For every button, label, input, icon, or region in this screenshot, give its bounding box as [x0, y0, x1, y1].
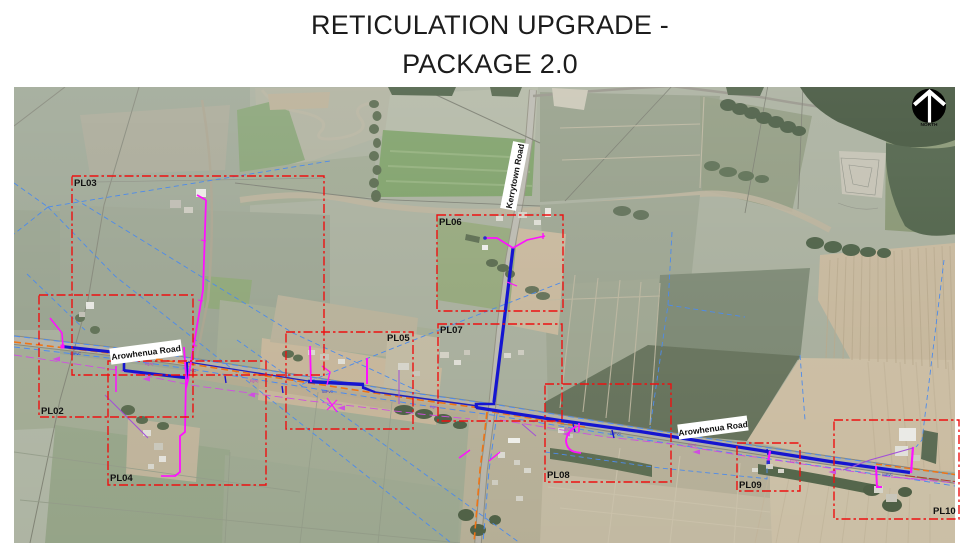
svg-text:PL07: PL07	[440, 325, 463, 336]
svg-text:PL08: PL08	[547, 470, 570, 481]
svg-text:PL02: PL02	[41, 406, 64, 417]
svg-text:E(pv): E(pv)	[145, 362, 153, 366]
svg-text:50PVC: 50PVC	[322, 390, 334, 394]
svg-text:PL09: PL09	[739, 480, 762, 491]
svg-text:PL06: PL06	[439, 217, 462, 228]
svg-text:50PVC: 50PVC	[882, 473, 894, 477]
svg-text:PL03: PL03	[74, 178, 97, 189]
svg-text:E(pv): E(pv)	[250, 379, 258, 383]
svg-text:PL04: PL04	[110, 473, 133, 484]
svg-text:PL05: PL05	[387, 333, 410, 344]
svg-text:E(pv): E(pv)	[790, 459, 798, 463]
svg-text:E(pv): E(pv)	[430, 405, 438, 409]
svg-text:E(pv): E(pv)	[688, 443, 696, 447]
svg-text:NORTH: NORTH	[920, 122, 938, 128]
svg-text:PL10: PL10	[933, 506, 956, 517]
svg-text:50PVC: 50PVC	[610, 432, 622, 436]
